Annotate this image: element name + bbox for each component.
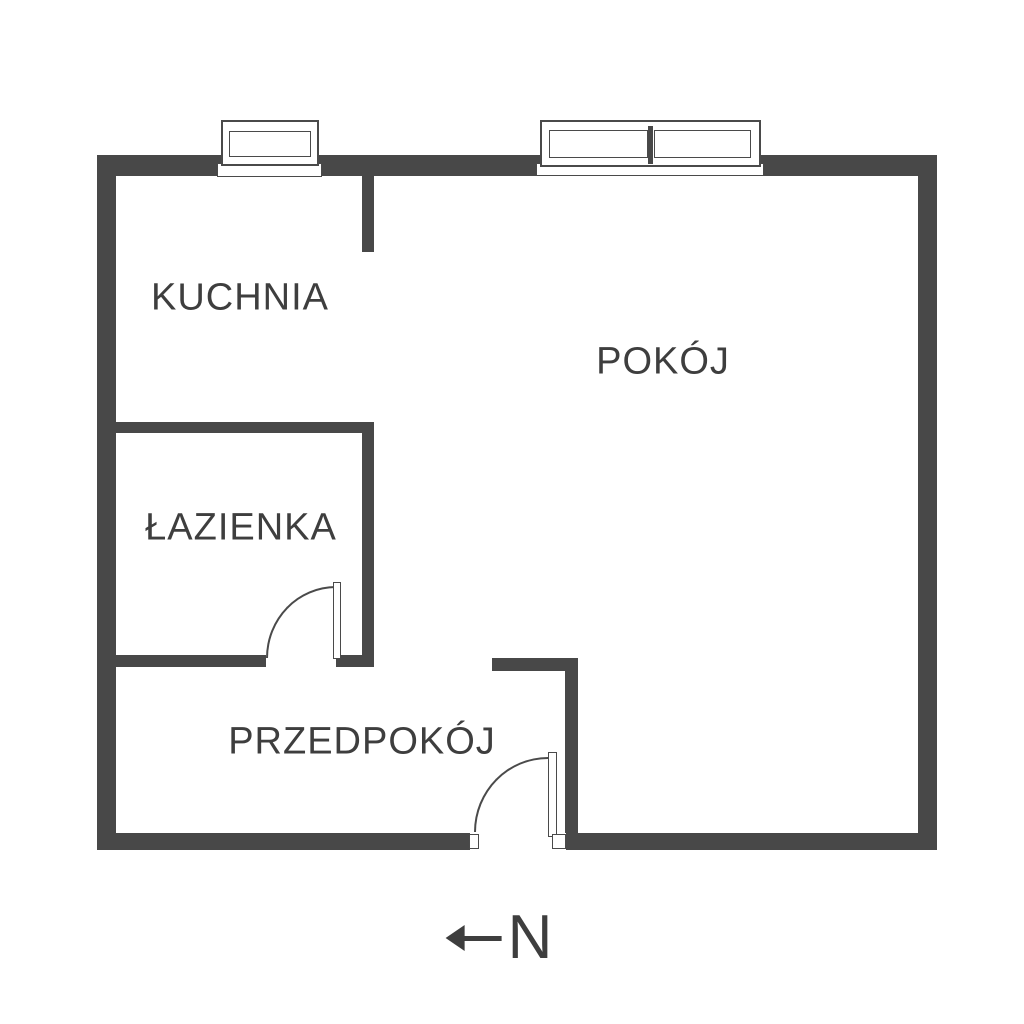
window-living-pane-left	[549, 130, 648, 158]
north-compass: N	[446, 907, 553, 969]
wall-bottom-right	[566, 833, 937, 850]
wall-kitchen-divider	[362, 176, 374, 252]
wall-bathroom-top	[116, 422, 374, 433]
door-entrance-threshold-right	[552, 834, 566, 849]
room-label-lazienka: ŁAZIENKA	[145, 507, 337, 550]
wall-bathroom-door-stub	[336, 655, 374, 667]
wall-bathroom-right	[362, 422, 374, 667]
wall-bathroom-bottom	[116, 655, 266, 667]
wall-left	[97, 155, 116, 850]
wall-hall-right	[565, 658, 578, 833]
door-entrance-threshold-left	[469, 834, 479, 849]
north-letter: N	[508, 907, 553, 969]
door-entrance-leaf	[548, 752, 557, 837]
wall-bottom-left	[97, 833, 470, 850]
room-label-pokoj: POKÓJ	[596, 341, 730, 384]
north-arrow-icon	[446, 925, 502, 951]
room-label-kuchnia: KUCHNIA	[151, 277, 329, 320]
door-entrance-swing-arc	[474, 757, 548, 832]
window-kitchen-pane	[229, 131, 311, 157]
floor-plan: KUCHNIA POKÓJ ŁAZIENKA PRZEDPOKÓJ N	[0, 0, 1024, 1024]
door-bathroom-leaf	[333, 582, 341, 659]
window-living-pane-right	[654, 130, 751, 158]
door-bathroom-swing-arc	[266, 586, 336, 658]
wall-right	[918, 155, 937, 850]
window-living-mullion	[648, 126, 653, 164]
room-label-przedpokoj: PRZEDPOKÓJ	[228, 721, 496, 764]
